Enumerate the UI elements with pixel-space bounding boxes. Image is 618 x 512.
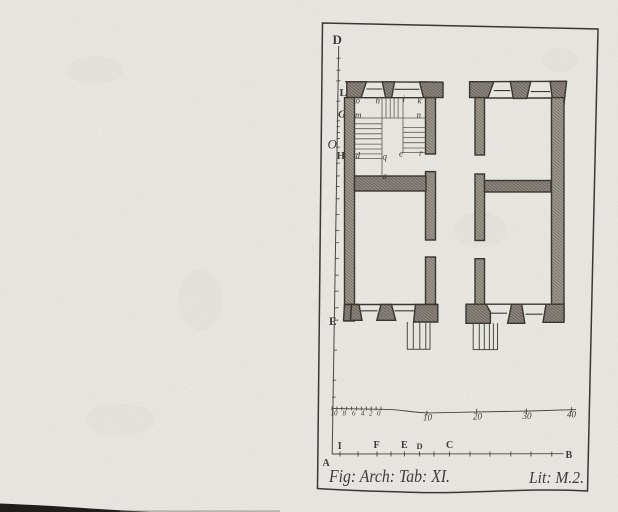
svg-text:6: 6 [352,410,356,418]
svg-text:Fig: Arch: Tab: XI.: Fig: Arch: Tab: XI. [328,466,450,486]
svg-text:n: n [417,110,422,120]
svg-text:D: D [417,441,423,451]
svg-text:40: 40 [567,410,577,420]
svg-text:F: F [374,440,380,451]
svg-text:10: 10 [423,413,433,423]
svg-text:E: E [329,316,337,328]
svg-text:h: h [376,96,381,106]
svg-text:o: o [356,96,361,106]
svg-text:4: 4 [361,410,365,418]
svg-text:30: 30 [522,411,533,421]
svg-text:d: d [356,151,361,161]
svg-text:E: E [401,440,408,451]
svg-text:8: 8 [343,410,347,418]
svg-text:B: B [566,450,573,461]
svg-text:e: e [399,149,403,159]
svg-text:D: D [333,32,342,47]
svg-text:r: r [419,148,423,158]
svg-text:H: H [337,151,345,162]
svg-text:a: a [383,171,388,181]
svg-text:Lit: M.2.: Lit: M.2. [528,468,584,487]
svg-text:I: I [338,441,342,452]
svg-text:m: m [355,110,362,120]
svg-text:q: q [383,152,388,162]
svg-text:O: O [328,137,338,152]
svg-text:2: 2 [369,410,373,418]
svg-text:C: C [446,440,453,451]
svg-text:10: 10 [331,410,339,418]
svg-text:0: 0 [377,410,381,418]
svg-text:20: 20 [473,412,483,422]
